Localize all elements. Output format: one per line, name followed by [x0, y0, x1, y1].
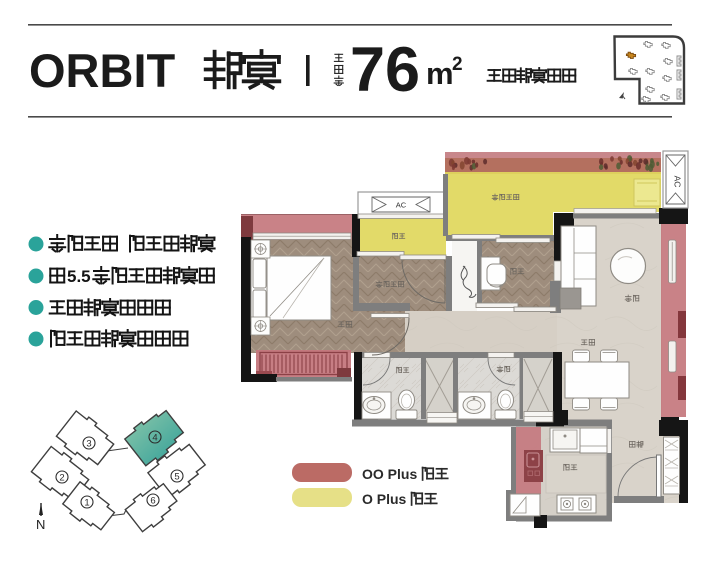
- svg-text:76: 76: [350, 35, 420, 105]
- svg-text:OO Plus: OO Plus: [362, 466, 417, 482]
- svg-text:N: N: [36, 517, 45, 532]
- svg-text:2: 2: [452, 54, 463, 75]
- svg-text:2: 2: [59, 472, 64, 483]
- svg-text:m: m: [426, 56, 454, 91]
- svg-text:ORBIT: ORBIT: [29, 44, 176, 97]
- svg-text:5.5: 5.5: [67, 267, 91, 286]
- svg-text:AC: AC: [396, 201, 407, 210]
- svg-text:6: 6: [150, 495, 155, 506]
- svg-text:4: 4: [152, 432, 157, 443]
- svg-text:3: 3: [86, 438, 91, 449]
- svg-text:O Plus: O Plus: [362, 491, 407, 507]
- svg-text:5: 5: [174, 471, 179, 482]
- svg-text:AC: AC: [673, 176, 683, 188]
- svg-text:1: 1: [84, 497, 89, 508]
